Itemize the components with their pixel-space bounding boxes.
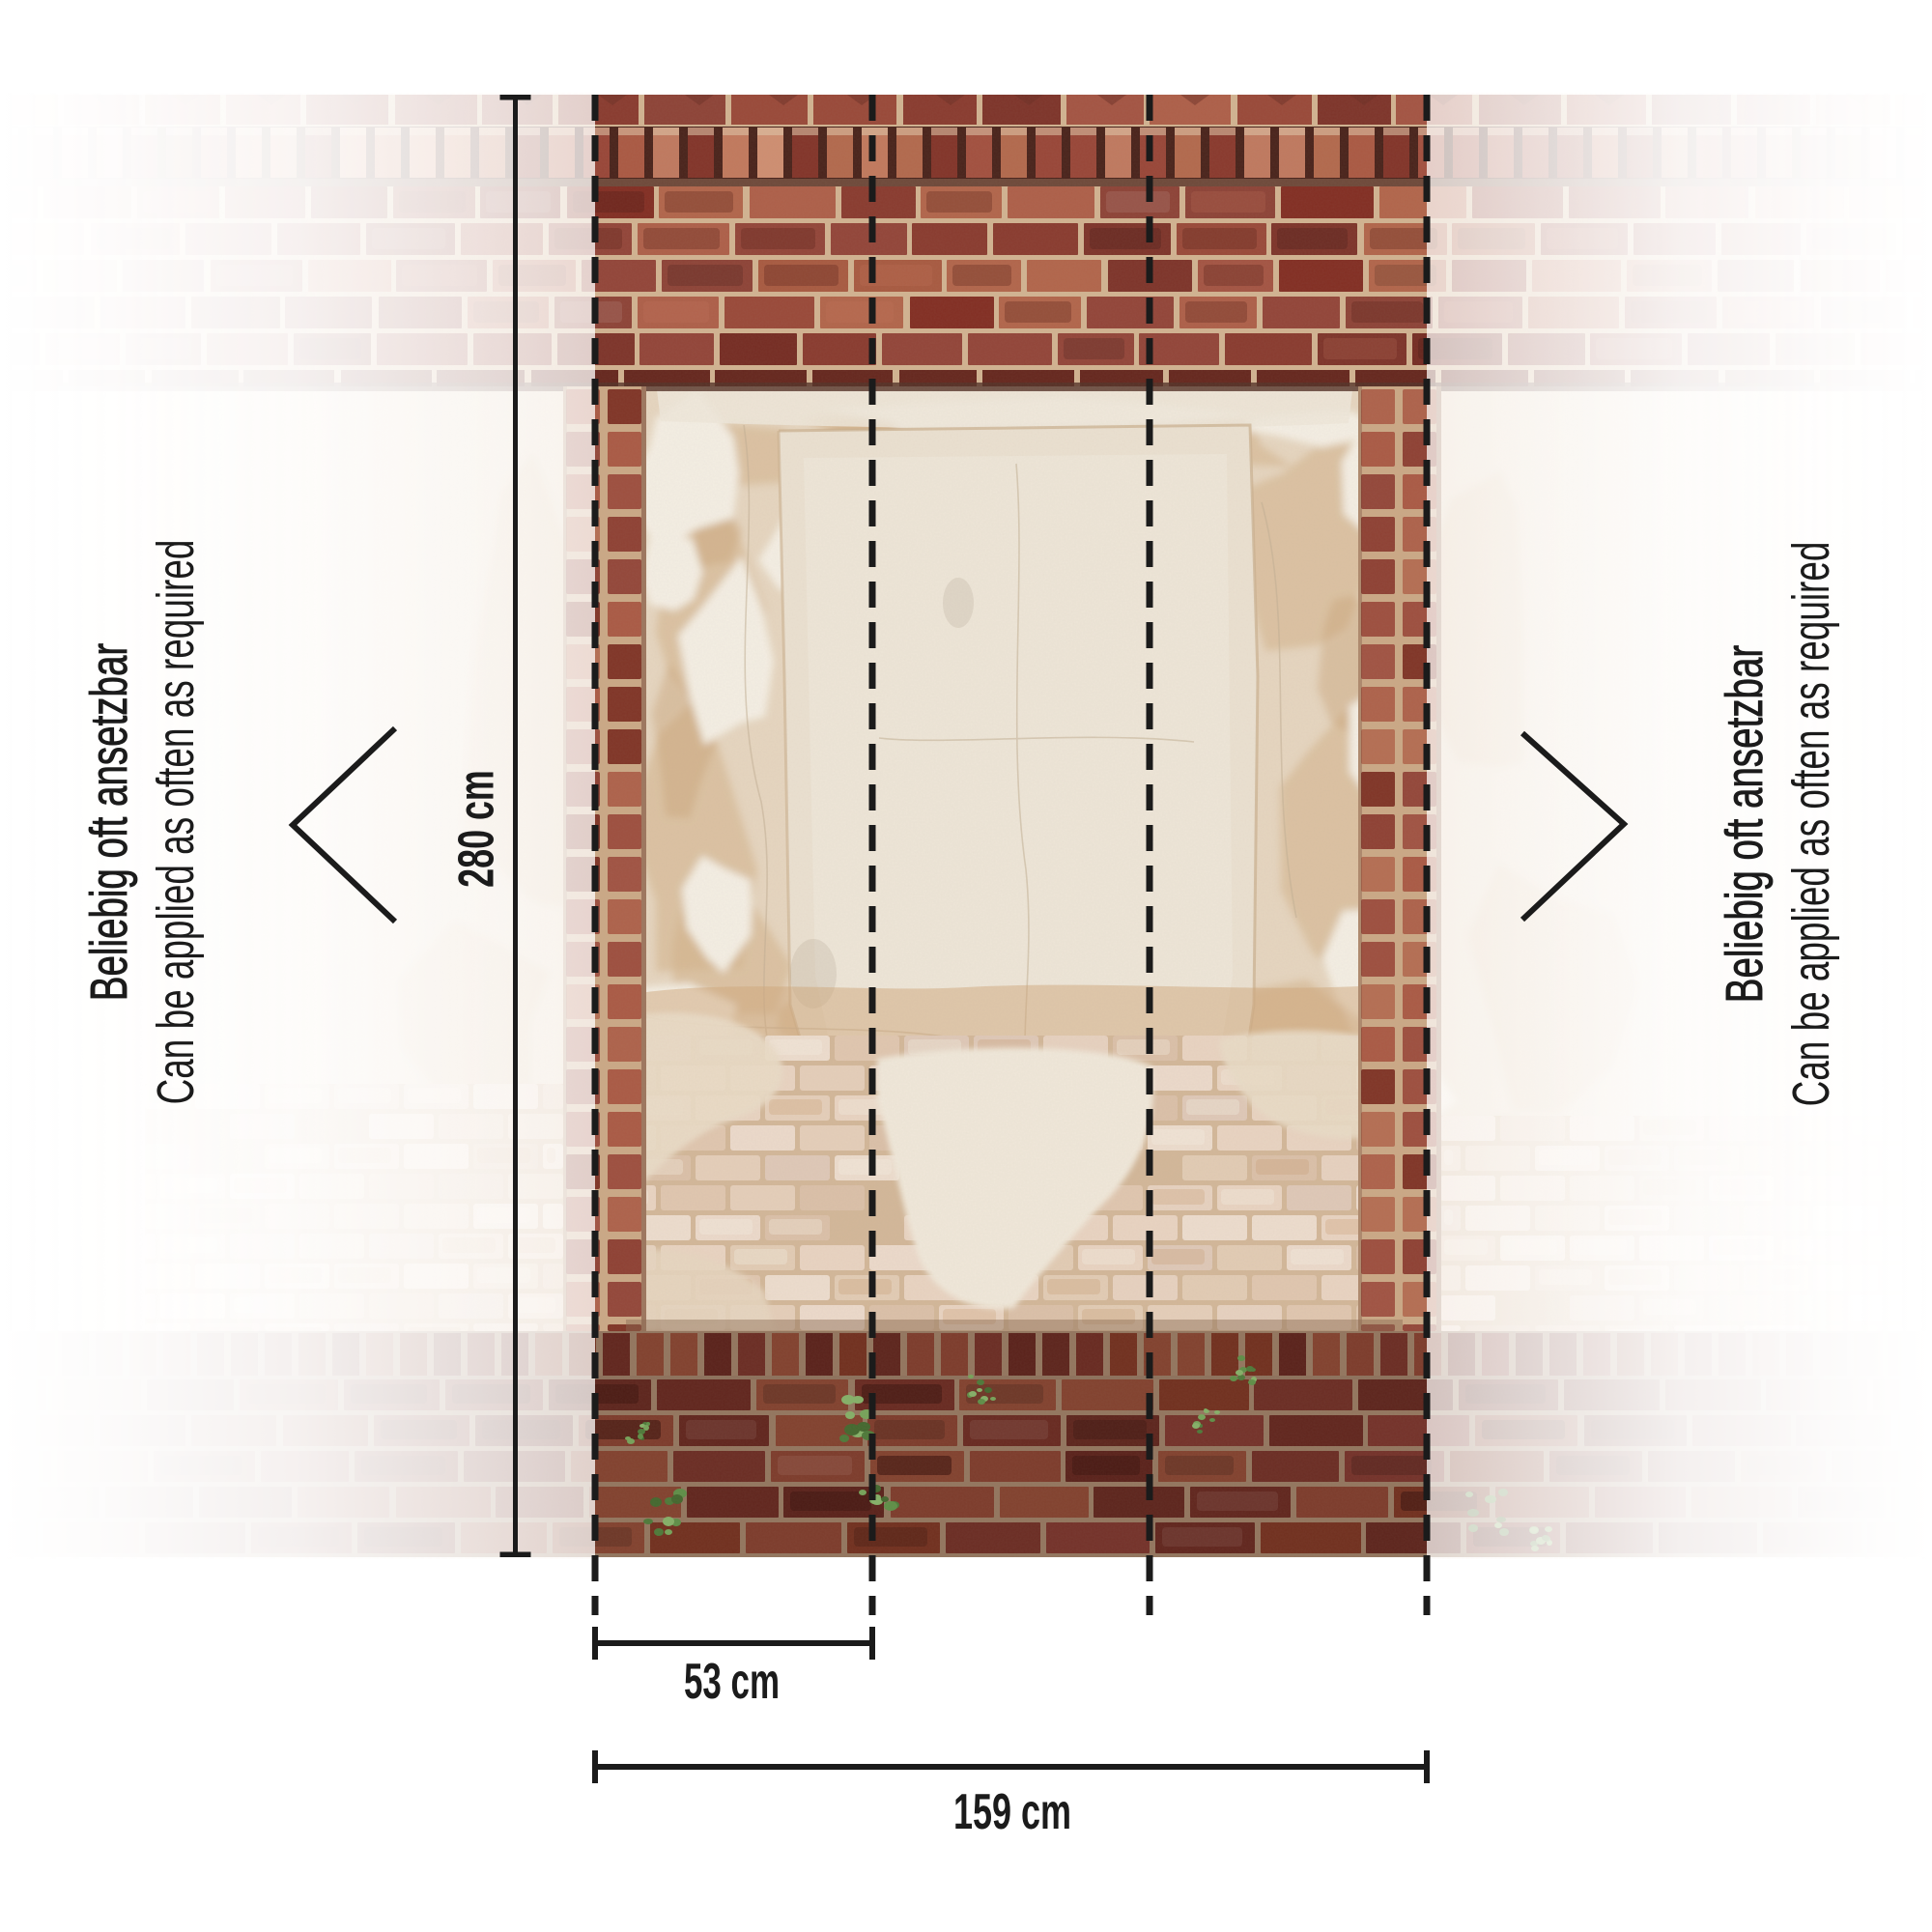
svg-text:159 cm: 159 cm xyxy=(953,1785,1071,1840)
svg-text:Can be applied as often as req: Can be applied as often as required xyxy=(146,540,205,1105)
svg-text:Beliebig oft ansetzbar: Beliebig oft ansetzbar xyxy=(1716,645,1774,1003)
svg-text:280 cm: 280 cm xyxy=(449,770,504,888)
svg-text:Beliebig oft ansetzbar: Beliebig oft ansetzbar xyxy=(80,643,138,1001)
svg-text:Can be applied as often as req: Can be applied as often as required xyxy=(1781,542,1840,1107)
svg-text:53 cm: 53 cm xyxy=(684,1654,780,1710)
